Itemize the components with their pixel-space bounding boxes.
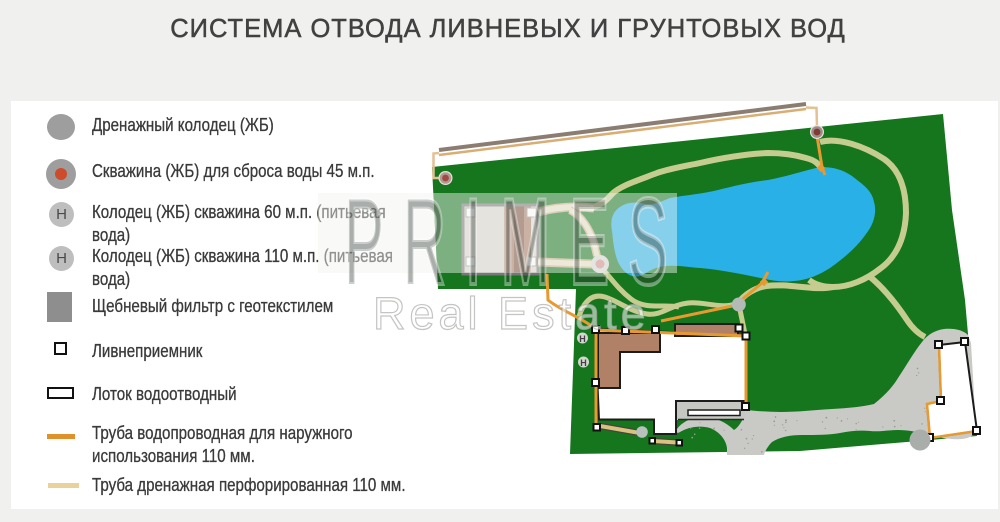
svg-text:H: H [580,358,587,368]
svg-text:Real Estate: Real Estate [373,288,650,339]
